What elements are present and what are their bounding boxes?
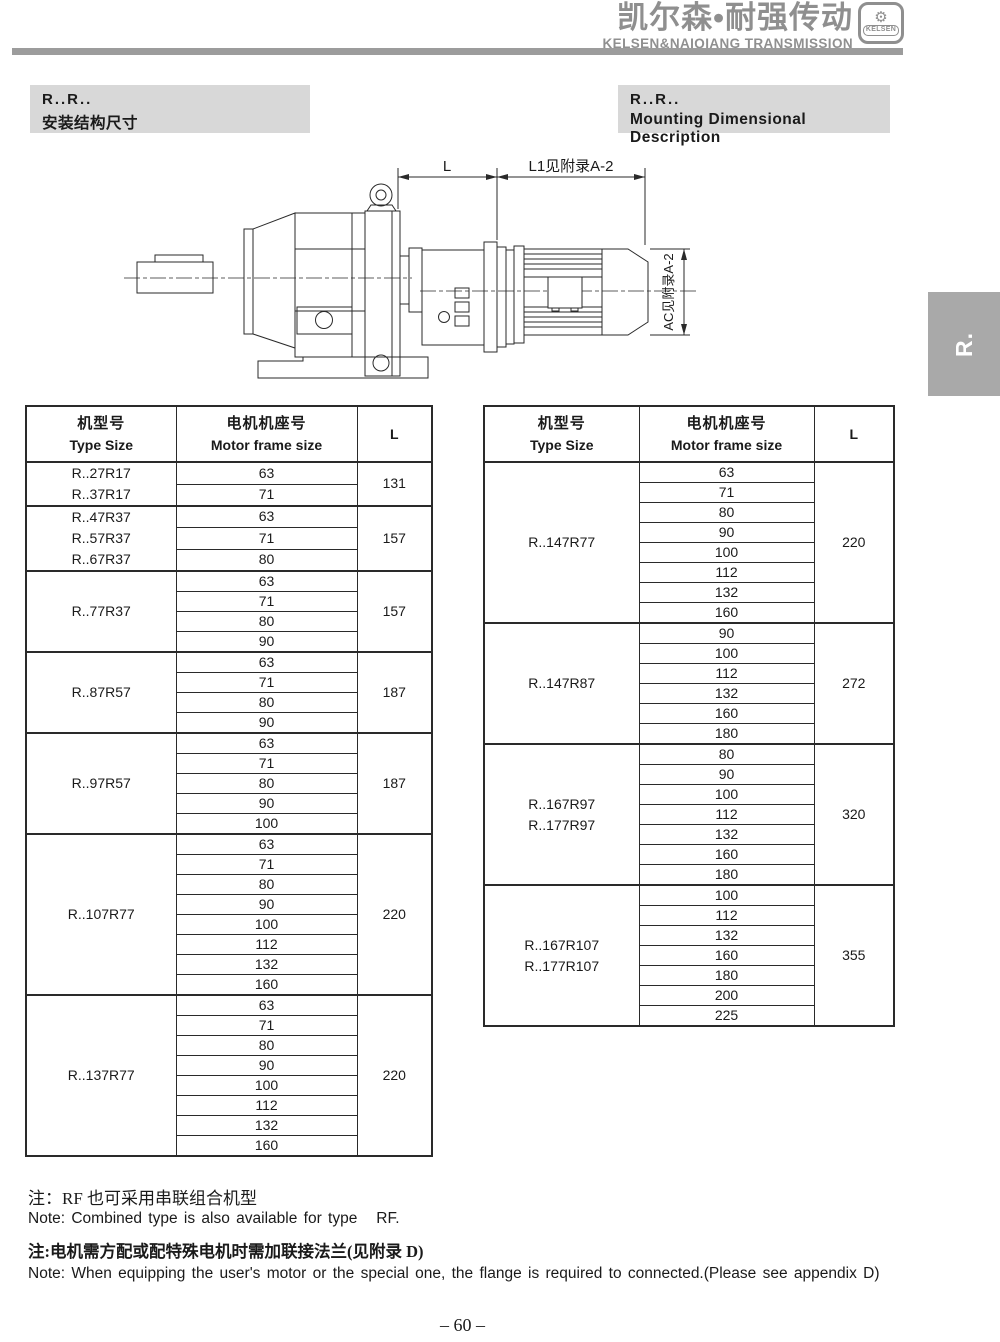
section-subtitle-cn: 安装结构尺寸 [42,111,298,133]
frame-size-cell: 100 [639,543,814,563]
table-row: R..27R17R..37R1763131 [26,462,432,484]
frame-size-cell: 90 [639,523,814,543]
type-size-cell: R..147R77 [484,462,639,623]
dim-label-ac: AC见附录A-2 [661,253,676,330]
col-header-motor-frame: 电机机座号Motor frame size [176,406,357,462]
frame-size-cell: 100 [176,1076,357,1096]
drawing-lines [124,184,697,378]
frame-size-cell: 63 [639,462,814,483]
type-size-cell: R..137R77 [26,995,176,1156]
frame-size-cell: 100 [176,915,357,935]
frame-size-cell: 160 [639,946,814,966]
section-title-en: R..R.. Mounting Dimensional Description [618,85,890,133]
table-row: R..167R107R..177R107100355 [484,885,894,906]
l-value-cell: 220 [814,462,894,623]
technical-drawing-gearmotor: L L1见附录A-2 AC见附录A-2 [120,145,700,395]
frame-size-cell: 100 [176,814,357,835]
frame-size-cell: 63 [176,506,357,528]
kelsen-logo: ⚙ KELSEN [858,2,904,44]
page-number: – 60 – [0,1315,925,1336]
frame-size-cell: 112 [176,935,357,955]
type-size-cell: R..47R37R..57R37R..67R37 [26,506,176,571]
frame-size-cell: 100 [639,644,814,664]
l-value-cell: 187 [357,652,432,733]
l-value-cell: 131 [357,462,432,506]
frame-size-cell: 132 [176,955,357,975]
table-row: R..147R8790272 [484,623,894,644]
section-subtitle-en: Mounting Dimensional Description [630,111,878,147]
section-title-cn: R..R.. 安装结构尺寸 [30,85,310,133]
frame-size-cell: 160 [176,1136,357,1157]
brand-block: 凯尔森•耐强传动 KELSEN&NAIQIANG TRANSMISSION [603,2,853,51]
frame-size-cell: 112 [639,664,814,684]
frame-size-cell: 200 [639,986,814,1006]
type-size-cell: R..87R57 [26,652,176,733]
frame-size-cell: 71 [176,592,357,612]
table-row: R..147R7763220 [484,462,894,483]
frame-size-cell: 63 [176,733,357,754]
dim-label-l1: L1见附录A-2 [528,158,613,175]
dim-label-l: L [443,158,451,175]
frame-size-cell: 100 [639,885,814,906]
dimension-lines [398,168,690,335]
header-divider [12,48,903,55]
frame-size-cell: 63 [176,834,357,855]
frame-size-cell: 71 [176,855,357,875]
col-header-l: L [357,406,432,462]
frame-size-cell: 132 [639,926,814,946]
frame-size-cell: 80 [639,744,814,765]
table-row: R..137R7763220 [26,995,432,1016]
catalog-page: 凯尔森•耐强传动 KELSEN&NAIQIANG TRANSMISSION ⚙ … [0,0,1000,1342]
frame-size-cell: 80 [176,1036,357,1056]
frame-size-cell: 132 [639,825,814,845]
frame-size-cell: 132 [176,1116,357,1136]
brand-title-cn: 凯尔森•耐强传动 [603,2,853,35]
frame-size-cell: 180 [639,724,814,745]
frame-size-cell: 180 [639,966,814,986]
type-size-cell: R..147R87 [484,623,639,744]
frame-size-cell: 180 [639,865,814,886]
frame-size-cell: 71 [176,673,357,693]
col-header-l: L [814,406,894,462]
frame-size-cell: 90 [176,1056,357,1076]
frame-size-cell: 160 [639,845,814,865]
frame-size-cell: 112 [176,1096,357,1116]
frame-size-cell: 112 [639,906,814,926]
spec-table-left: 机型号Type Size电机机座号Motor frame sizeLR..27R… [25,405,433,1157]
frame-size-cell: 160 [639,603,814,624]
frame-size-cell: 71 [176,754,357,774]
type-size-cell: R..167R107R..177R107 [484,885,639,1026]
type-size-cell: R..97R57 [26,733,176,834]
frame-size-cell: 80 [176,612,357,632]
table-row: R..47R37R..57R37R..67R3763157 [26,506,432,528]
frame-size-cell: 225 [639,1006,814,1027]
type-size-cell: R..27R17R..37R17 [26,462,176,506]
note-cn-1: 注：RF 也可采用串联组合机型 [28,1184,257,1209]
gear-icon: ⚙ [874,10,887,25]
page-index-label: R. [951,332,978,357]
l-value-cell: 355 [814,885,894,1026]
l-value-cell: 320 [814,744,894,885]
col-header-motor-frame: 电机机座号Motor frame size [639,406,814,462]
col-header-type-size: 机型号Type Size [26,406,176,462]
logo-label: KELSEN [863,25,899,36]
l-value-cell: 157 [357,506,432,571]
frame-size-cell: 132 [639,684,814,704]
spec-table-right: 机型号Type Size电机机座号Motor frame sizeLR..147… [483,405,895,1027]
frame-size-cell: 90 [176,632,357,653]
table-row: R..77R3763157 [26,571,432,592]
frame-size-cell: 90 [176,895,357,915]
note-cn-2: 注:电机需方配或配特殊电机时需加联接法兰(见附录 D) [28,1238,424,1262]
frame-size-cell: 90 [639,765,814,785]
model-code-en: R..R.. [630,91,878,108]
frame-size-cell: 132 [639,583,814,603]
page-index-tab: R. [928,292,1000,396]
frame-size-cell: 71 [176,528,357,549]
frame-size-cell: 112 [639,563,814,583]
frame-size-cell: 71 [176,484,357,506]
l-value-cell: 157 [357,571,432,652]
col-header-type-size: 机型号Type Size [484,406,639,462]
note-en-1: Note: Combined type is also available fo… [28,1210,400,1228]
table-row: R..87R5763187 [26,652,432,673]
l-value-cell: 220 [357,834,432,995]
frame-size-cell: 80 [176,549,357,571]
frame-size-cell: 80 [639,503,814,523]
frame-size-cell: 71 [176,1016,357,1036]
note-en-2: Note: When equipping the user's motor or… [28,1265,879,1283]
frame-size-cell: 63 [176,462,357,484]
frame-size-cell: 63 [176,652,357,673]
type-size-cell: R..107R77 [26,834,176,995]
type-size-cell: R..167R97R..177R97 [484,744,639,885]
frame-size-cell: 80 [176,774,357,794]
table-row: R..107R7763220 [26,834,432,855]
frame-size-cell: 100 [639,785,814,805]
frame-size-cell: 112 [639,805,814,825]
model-code: R..R.. [42,91,298,108]
frame-size-cell: 90 [639,623,814,644]
type-size-cell: R..77R37 [26,571,176,652]
l-value-cell: 272 [814,623,894,744]
frame-size-cell: 63 [176,571,357,592]
frame-size-cell: 90 [176,794,357,814]
frame-size-cell: 160 [176,975,357,996]
l-value-cell: 187 [357,733,432,834]
frame-size-cell: 90 [176,713,357,734]
frame-size-cell: 63 [176,995,357,1016]
frame-size-cell: 80 [176,693,357,713]
table-row: R..97R5763187 [26,733,432,754]
table-row: R..167R97R..177R9780320 [484,744,894,765]
frame-size-cell: 160 [639,704,814,724]
frame-size-cell: 71 [639,483,814,503]
l-value-cell: 220 [357,995,432,1156]
frame-size-cell: 80 [176,875,357,895]
